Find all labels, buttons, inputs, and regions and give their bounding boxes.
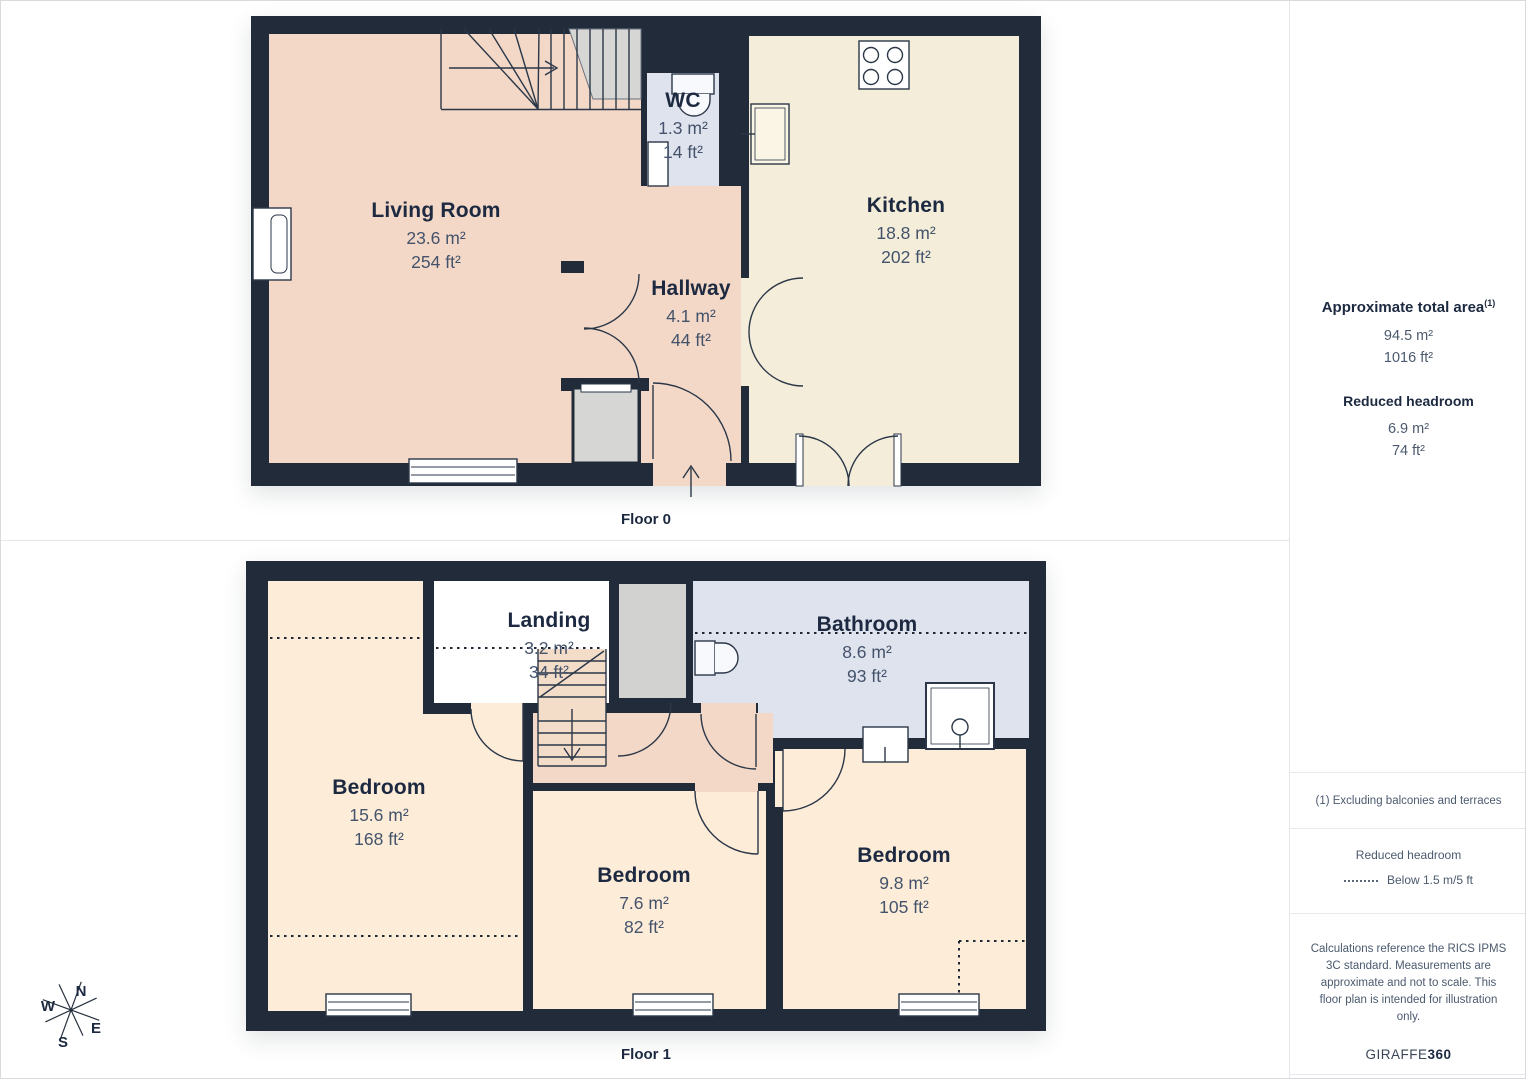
disclaimer-block: Calculations reference the RICS IPMS 3C … xyxy=(1290,914,1526,1075)
floorplan-page: Living Room 23.6 m² 254 ft² WC 1.3 m² 14… xyxy=(0,0,1526,1079)
room-area-m2: 4.1 m² xyxy=(651,304,731,328)
room-area-ft2: 254 ft² xyxy=(371,250,500,274)
compass-east: E xyxy=(91,1020,101,1037)
total-area-m2: 94.5 m² xyxy=(1290,325,1526,347)
giraffe360-logo: GIRAFFE360 xyxy=(1290,1047,1526,1062)
room-area-m2: 15.6 m² xyxy=(332,803,426,827)
total-area-ft2: 1016 ft² xyxy=(1290,347,1526,369)
room-name: Bedroom xyxy=(332,776,426,800)
room-label-landing: Landing 3.2 m² 34 ft² xyxy=(507,609,590,684)
legend-label: Below 1.5 m/5 ft xyxy=(1387,873,1473,887)
total-area-title: Approximate total area(1) xyxy=(1290,298,1526,316)
compass-west: W xyxy=(41,998,56,1015)
french-door-gap xyxy=(796,463,901,486)
room-area-ft2: 105 ft² xyxy=(857,895,951,919)
room-area-m2: 7.6 m² xyxy=(597,891,691,915)
floor1-label: Floor 1 xyxy=(246,1046,1046,1063)
reduced-headroom-legend: Reduced headroom Below 1.5 m/5 ft xyxy=(1290,828,1526,914)
floor-divider xyxy=(1,540,1289,541)
reduced-headroom-title: Reduced headroom xyxy=(1290,393,1526,409)
room-area-ft2: 14 ft² xyxy=(658,140,708,164)
room-area-ft2: 202 ft² xyxy=(867,245,945,269)
room-name: WC xyxy=(658,89,708,113)
bedroom-right-door-gap xyxy=(775,751,783,807)
room-area-m2: 23.6 m² xyxy=(371,226,500,250)
room-label-bedroom-middle: Bedroom 7.6 m² 82 ft² xyxy=(597,864,691,939)
compass-rose: N W E S xyxy=(29,963,159,1063)
shaft xyxy=(616,581,689,701)
room-label-bedroom-left: Bedroom 15.6 m² 168 ft² xyxy=(332,776,426,851)
room-name: Bedroom xyxy=(857,844,951,868)
room-area-m2: 8.6 m² xyxy=(817,640,918,664)
room-label-wc: WC 1.3 m² 14 ft² xyxy=(658,89,708,164)
room-bedroom-left-ext xyxy=(423,714,523,1011)
floor0-plan: Living Room 23.6 m² 254 ft² WC 1.3 m² 14… xyxy=(251,16,1041,486)
room-name: Bathroom xyxy=(817,613,918,637)
room-name: Landing xyxy=(507,609,590,633)
room-label-hallway: Hallway 4.1 m² 44 ft² xyxy=(651,277,731,352)
floor1-plan: Landing 3.2 m² 34 ft² Bathroom 8.6 m² 93… xyxy=(246,561,1046,1031)
compass-north: N xyxy=(76,983,87,1000)
compass-south: S xyxy=(58,1034,68,1051)
footnote: (1) Excluding balconies and terraces xyxy=(1290,772,1526,829)
room-area-ft2: 82 ft² xyxy=(597,915,691,939)
room-upper-hallway xyxy=(533,713,773,783)
room-area-ft2: 44 ft² xyxy=(651,328,731,352)
room-name: Living Room xyxy=(371,199,500,223)
room-label-kitchen: Kitchen 18.8 m² 202 ft² xyxy=(867,194,945,269)
room-living-stair-zone xyxy=(584,29,641,378)
legend-title: Reduced headroom xyxy=(1290,848,1526,862)
room-name: Hallway xyxy=(651,277,731,301)
reduced-headroom-m2: 6.9 m² xyxy=(1290,418,1526,440)
room-name: Bedroom xyxy=(597,864,691,888)
total-area-block: Approximate total area(1) 94.5 m² 1016 f… xyxy=(1290,298,1526,462)
brand-name: GIRAFFE xyxy=(1365,1047,1427,1062)
summary-sidebar: Approximate total area(1) 94.5 m² 1016 f… xyxy=(1289,1,1526,1078)
dotted-line-sample xyxy=(1344,880,1378,882)
room-area-m2: 9.8 m² xyxy=(857,871,951,895)
room-name: Kitchen xyxy=(867,194,945,218)
room-bathroom-ext xyxy=(758,703,1029,738)
room-label-bedroom-right: Bedroom 9.8 m² 105 ft² xyxy=(857,844,951,919)
brand-suffix: 360 xyxy=(1427,1047,1451,1062)
room-area-ft2: 168 ft² xyxy=(332,827,426,851)
room-area-m2: 18.8 m² xyxy=(867,221,945,245)
footnote-marker: (1) xyxy=(1484,298,1495,308)
total-area-title-text: Approximate total area xyxy=(1322,299,1485,316)
reduced-headroom-ft2: 74 ft² xyxy=(1290,440,1526,462)
legend-row: Below 1.5 m/5 ft xyxy=(1290,873,1526,887)
room-label-bathroom: Bathroom 8.6 m² 93 ft² xyxy=(817,613,918,688)
entry-door-gap xyxy=(653,463,726,486)
room-area-ft2: 34 ft² xyxy=(507,660,590,684)
room-label-living: Living Room 23.6 m² 254 ft² xyxy=(371,199,500,274)
disclaimer-text: Calculations reference the RICS IPMS 3C … xyxy=(1310,941,1508,1026)
room-area-m2: 1.3 m² xyxy=(658,116,708,140)
room-area-ft2: 93 ft² xyxy=(817,664,918,688)
floor0-label: Floor 0 xyxy=(251,511,1041,528)
room-area-m2: 3.2 m² xyxy=(507,636,590,660)
